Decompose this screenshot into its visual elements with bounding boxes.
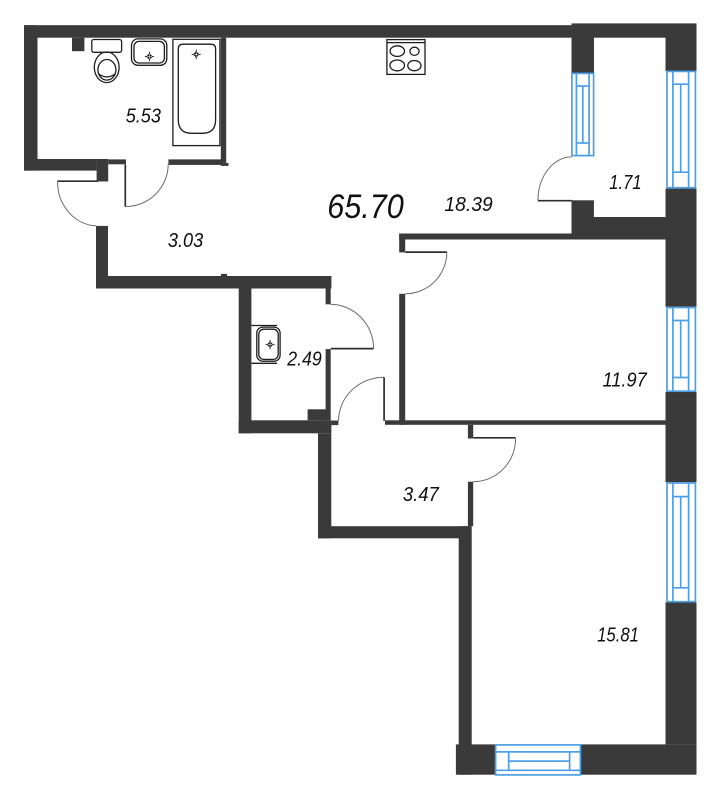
svg-text:65.70: 65.70 bbox=[327, 188, 404, 226]
svg-text:1.71: 1.71 bbox=[609, 172, 641, 194]
svg-text:18.39: 18.39 bbox=[444, 194, 492, 216]
svg-text:3.47: 3.47 bbox=[403, 484, 440, 506]
svg-text:11.97: 11.97 bbox=[603, 369, 648, 391]
svg-text:5.53: 5.53 bbox=[126, 106, 161, 128]
svg-text:3.03: 3.03 bbox=[168, 230, 203, 252]
svg-text:2.49: 2.49 bbox=[286, 349, 321, 371]
svg-text:15.81: 15.81 bbox=[597, 624, 639, 646]
